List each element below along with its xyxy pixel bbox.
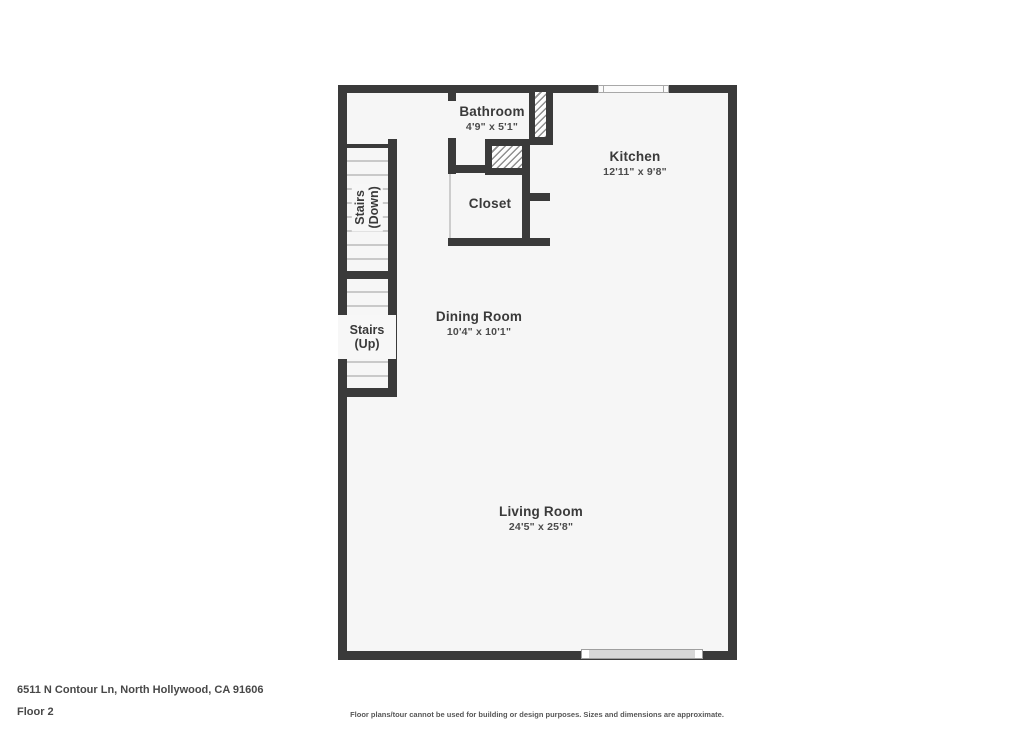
living-room-dimensions: 24'5" x 25'8": [499, 521, 583, 533]
dining-room-name: Dining Room: [436, 309, 522, 324]
living-room-label: Living Room 24'5" x 25'8": [499, 504, 583, 533]
dining-room-label: Dining Room 10'4" x 10'1": [436, 309, 522, 338]
living-room-name: Living Room: [499, 504, 583, 519]
stairs-down-line1: Stairs: [353, 186, 367, 228]
stairs-down-label-text: Stairs (Down): [352, 183, 383, 231]
stairs-down-top-cap: [347, 144, 388, 148]
stairs-down-label: Stairs (Down): [327, 167, 407, 247]
property-address: 6511 N Contour Ln, North Hollywood, CA 9…: [17, 684, 264, 696]
stairs-down-line2: (Down): [367, 186, 381, 228]
stairs-up-line1: Stairs: [350, 323, 385, 337]
bathroom-dimensions: 4'9" x 5'1": [459, 121, 524, 133]
bathroom-left-wall-stub: [448, 92, 456, 101]
window-endcap: [582, 650, 589, 658]
bathroom-name: Bathroom: [459, 104, 524, 119]
disclaimer-text: Floor plans/tour cannot be used for buil…: [350, 710, 724, 719]
stairs-up-bottom-cap: [347, 388, 397, 397]
window-top: [598, 85, 669, 93]
closet-name: Closet: [469, 196, 511, 211]
closet-door-opening: [449, 174, 451, 238]
kitchen-label: Kitchen 12'11" x 9'8": [603, 149, 667, 178]
window-mullion: [663, 85, 664, 93]
closet-right-wall: [522, 139, 530, 246]
window-endcap: [695, 650, 702, 658]
closet-label: Closet: [469, 196, 511, 211]
floor-number-label: Floor 2: [17, 706, 54, 718]
bathroom-label: Bathroom 4'9" x 5'1": [459, 104, 524, 133]
hatched-chase-vertical: [529, 92, 553, 145]
kitchen-dimensions: 12'11" x 9'8": [603, 166, 667, 178]
closet-bottom-wall: [448, 238, 550, 246]
stairs-up-line2: (Up): [355, 337, 380, 351]
window-mullion: [603, 85, 604, 93]
stairs-divider-wall: [338, 271, 397, 279]
stairs-up-label: Stairs (Up): [338, 315, 396, 359]
kitchen-name: Kitchen: [603, 149, 667, 164]
window-bottom: [581, 649, 703, 659]
exterior-wall-right: [728, 85, 737, 660]
dining-room-dimensions: 10'4" x 10'1": [436, 326, 522, 338]
bathroom-bottom-left-wall: [448, 165, 486, 173]
floorplan-canvas: Stairs (Down) Stairs (Up) Bathroom 4'9" …: [0, 0, 1024, 740]
kitchen-entry-stub-wall: [530, 193, 550, 201]
